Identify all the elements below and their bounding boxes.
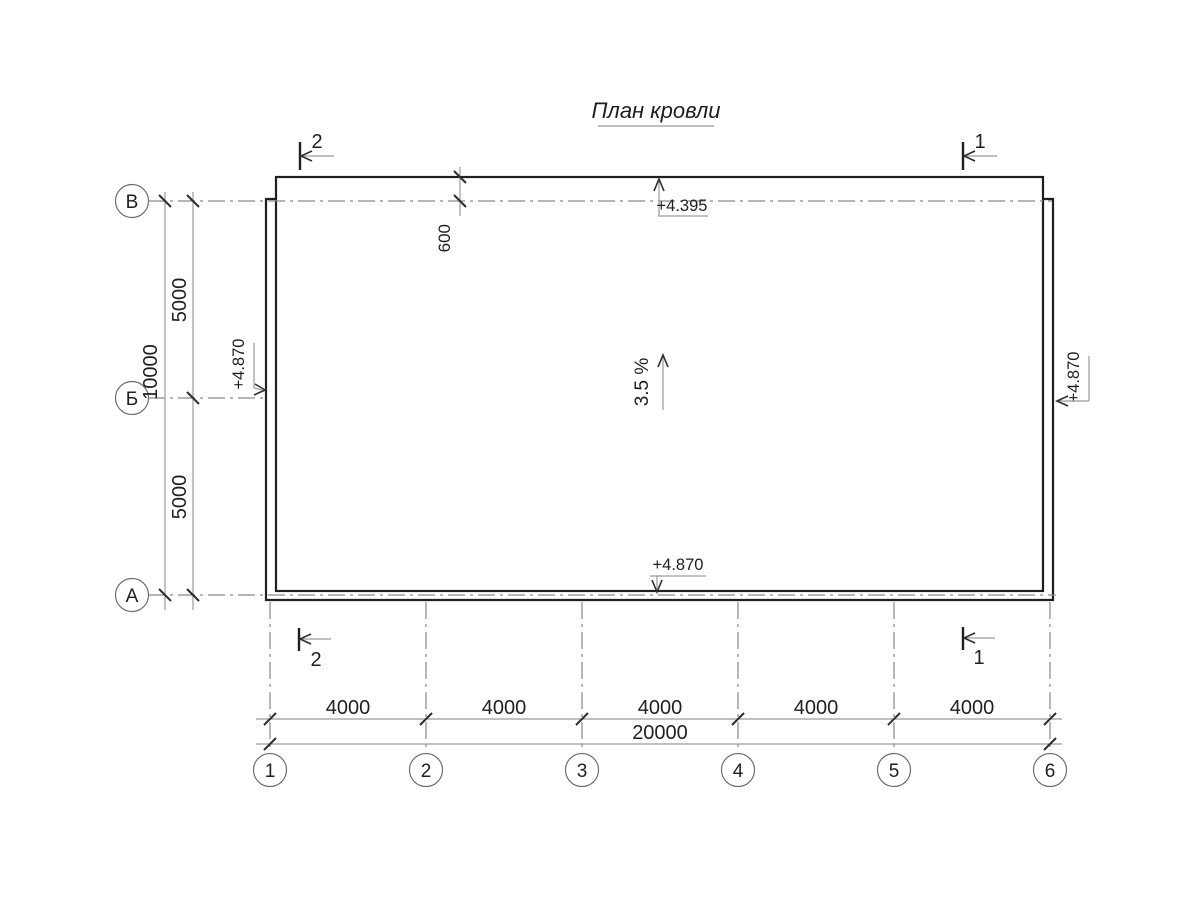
axis-label-b: Б xyxy=(126,389,138,410)
section-label: 1 xyxy=(974,131,985,153)
page-title: План кровли xyxy=(591,98,720,123)
axis-label-1: 1 xyxy=(265,761,276,782)
elevation-label-bottom: +4.870 xyxy=(653,556,704,574)
elevation-mark-bottom: +4.870 xyxy=(650,556,706,592)
axis-label-v: В xyxy=(126,192,139,213)
axis-label-6: 6 xyxy=(1045,761,1056,782)
section-mark-bottom-right: 1 xyxy=(963,627,995,669)
dim-label-bottom-total: 20000 xyxy=(632,722,688,744)
dim-label-left-total: 10000 xyxy=(140,344,162,400)
axis-label-5: 5 xyxy=(889,761,900,782)
axis-label-2: 2 xyxy=(421,761,432,782)
dim-label-span-1: 4000 xyxy=(326,697,371,719)
section-mark-top-left: 2 xyxy=(300,131,334,170)
section-mark-top-right: 1 xyxy=(963,131,997,170)
dim-label-span-5: 4000 xyxy=(950,697,995,719)
axis-label-4: 4 xyxy=(733,761,744,782)
building-outline xyxy=(266,177,1053,600)
dim-label-left-span-1: 5000 xyxy=(169,278,191,323)
slope-label: 3.5 % xyxy=(632,358,653,407)
axis-label-a: А xyxy=(126,586,139,607)
roof-slab-outline xyxy=(276,177,1043,591)
section-label: 2 xyxy=(310,649,321,671)
drawing-sheet: План кровли В Б А 1 2 3 4 5 xyxy=(0,0,1200,900)
section-label: 2 xyxy=(311,131,322,153)
elevation-label-right: +4.870 xyxy=(1065,352,1083,403)
section-mark-bottom-left: 2 xyxy=(299,628,331,671)
dim-label-span-3: 4000 xyxy=(638,697,683,719)
elevation-label-top: +4.395 xyxy=(657,197,708,215)
roof-plan-drawing: План кровли В Б А 1 2 3 4 5 xyxy=(0,0,1200,900)
slope-mark: 3.5 % xyxy=(632,355,668,410)
wall-outline xyxy=(266,199,1053,600)
axis-lines xyxy=(148,201,1056,752)
axis-label-3: 3 xyxy=(577,761,588,782)
dim-label-span-4: 4000 xyxy=(794,697,839,719)
elevation-mark-top: +4.395 xyxy=(654,179,708,216)
dimensions-left: 5000 5000 10000 xyxy=(140,192,199,610)
elevation-mark-left: +4.870 xyxy=(230,339,265,395)
elevation-mark-right: +4.870 xyxy=(1057,352,1089,406)
dim-label-eave-offset: 600 xyxy=(435,224,454,252)
dim-label-span-2: 4000 xyxy=(482,697,527,719)
col-axis-bubbles: 1 2 3 4 5 6 xyxy=(254,754,1067,787)
title-block: План кровли xyxy=(591,98,720,126)
dimension-eave-offset: 600 xyxy=(435,167,466,252)
elevation-label-left: +4.870 xyxy=(230,339,248,390)
dim-label-left-span-2: 5000 xyxy=(169,475,191,520)
dimensions-bottom: 4000 4000 4000 4000 4000 20000 xyxy=(256,697,1062,750)
section-label: 1 xyxy=(973,647,984,669)
